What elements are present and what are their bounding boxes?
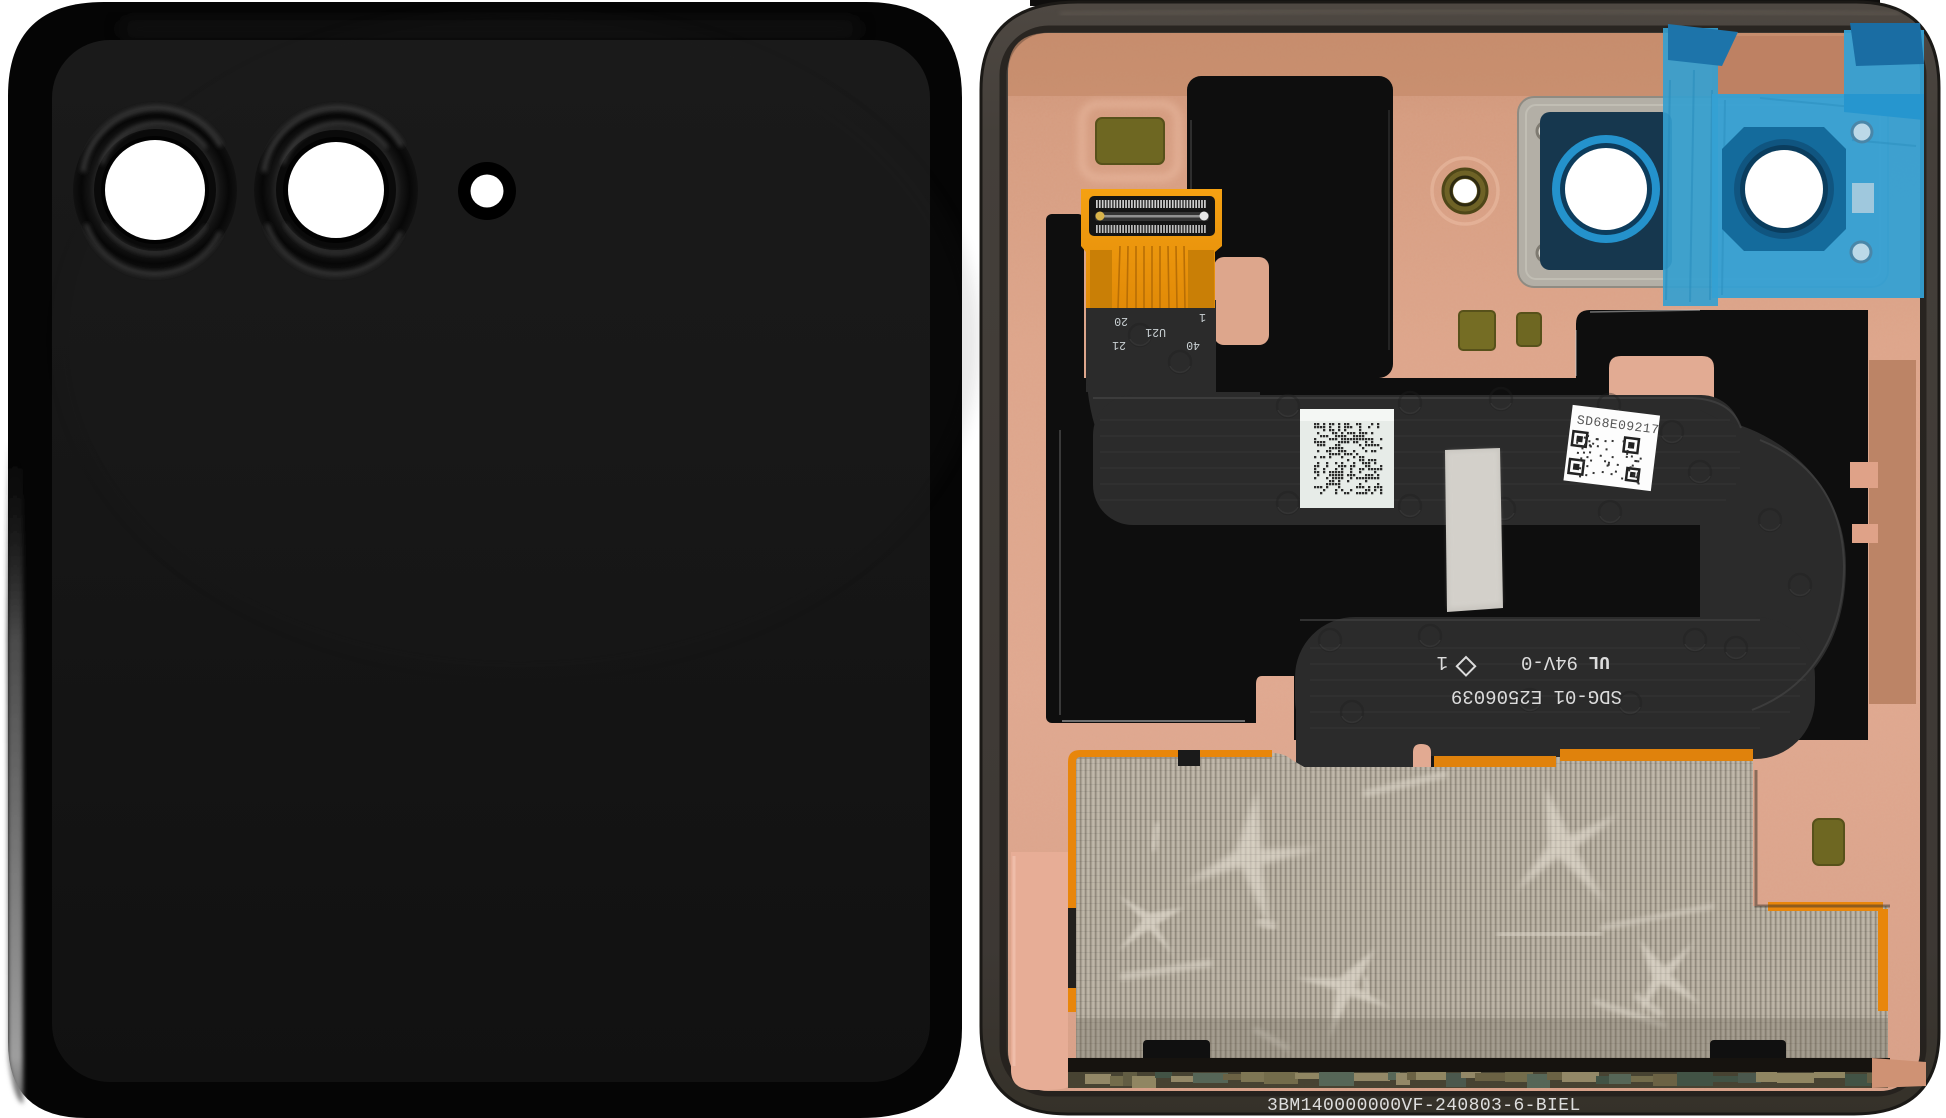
svg-text:21: 21	[1112, 338, 1126, 351]
svg-text:1: 1	[1437, 651, 1448, 673]
svg-text:20: 20	[1114, 314, 1128, 327]
svg-text:1: 1	[1199, 310, 1206, 323]
svg-text:40: 40	[1186, 338, 1200, 351]
svg-text:SDG-01 E2506039: SDG-01 E2506039	[1451, 685, 1622, 707]
svg-text:UL: UL	[1588, 651, 1610, 671]
svg-text:3BM140000000VF-240803-6-BIEL: 3BM140000000VF-240803-6-BIEL	[1267, 1096, 1581, 1116]
svg-text:94V-0: 94V-0	[1521, 651, 1578, 673]
svg-text:U21: U21	[1145, 325, 1166, 338]
